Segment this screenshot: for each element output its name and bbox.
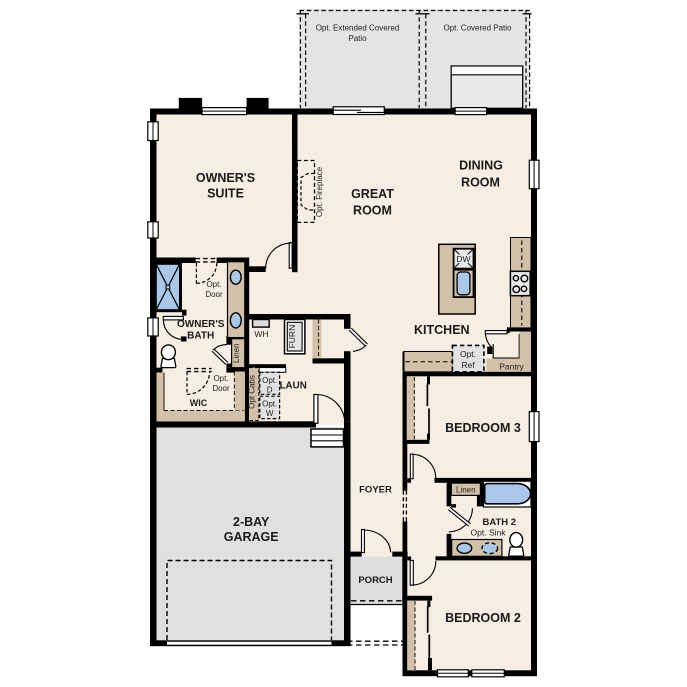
svg-text:Opt Cabs: Opt Cabs [247,375,256,409]
svg-text:Linen: Linen [232,343,241,363]
svg-text:W: W [266,409,274,418]
svg-text:Opt.: Opt. [262,400,277,409]
svg-text:DW: DW [456,254,470,264]
svg-text:D: D [267,386,273,395]
svg-text:Ref: Ref [461,360,475,370]
svg-text:Opt.: Opt. [262,376,277,385]
svg-text:Opt.: Opt. [460,349,476,359]
svg-text:Opt.: Opt. [206,280,221,289]
svg-text:ROOM: ROOM [353,204,392,218]
svg-text:Opt. Fireplace: Opt. Fireplace [315,166,324,217]
svg-text:Opt. Extended Covered: Opt. Extended Covered [316,24,400,33]
svg-text:Opt. Sink: Opt. Sink [471,527,507,537]
svg-text:ROOM: ROOM [461,175,500,189]
svg-text:Pantry: Pantry [499,362,524,372]
svg-text:Opt. Covered Patio: Opt. Covered Patio [443,24,512,33]
svg-text:Linen: Linen [456,486,476,495]
svg-text:FURN: FURN [287,325,297,349]
svg-text:OWNER'S: OWNER'S [196,171,255,185]
svg-text:KITCHEN: KITCHEN [414,323,470,337]
svg-text:FOYER: FOYER [359,485,392,496]
svg-text:BEDROOM 3: BEDROOM 3 [445,421,521,435]
svg-text:Door: Door [205,290,223,299]
svg-text:Patio: Patio [348,34,367,43]
svg-text:WH: WH [254,329,268,339]
svg-text:WIC: WIC [190,398,208,408]
svg-text:DINING: DINING [459,158,503,172]
svg-text:Opt.: Opt. [213,374,228,383]
svg-text:GREAT: GREAT [351,187,394,201]
svg-text:LAUN: LAUN [280,380,307,391]
svg-text:2-BAY: 2-BAY [233,515,270,529]
svg-text:Door: Door [212,384,230,393]
svg-text:BATH: BATH [187,331,214,342]
svg-text:GARAGE: GARAGE [224,530,279,544]
svg-text:SUITE: SUITE [207,187,244,201]
svg-text:BEDROOM 2: BEDROOM 2 [445,611,521,625]
svg-text:OWNER'S: OWNER'S [177,319,225,330]
svg-text:PORCH: PORCH [358,575,392,586]
